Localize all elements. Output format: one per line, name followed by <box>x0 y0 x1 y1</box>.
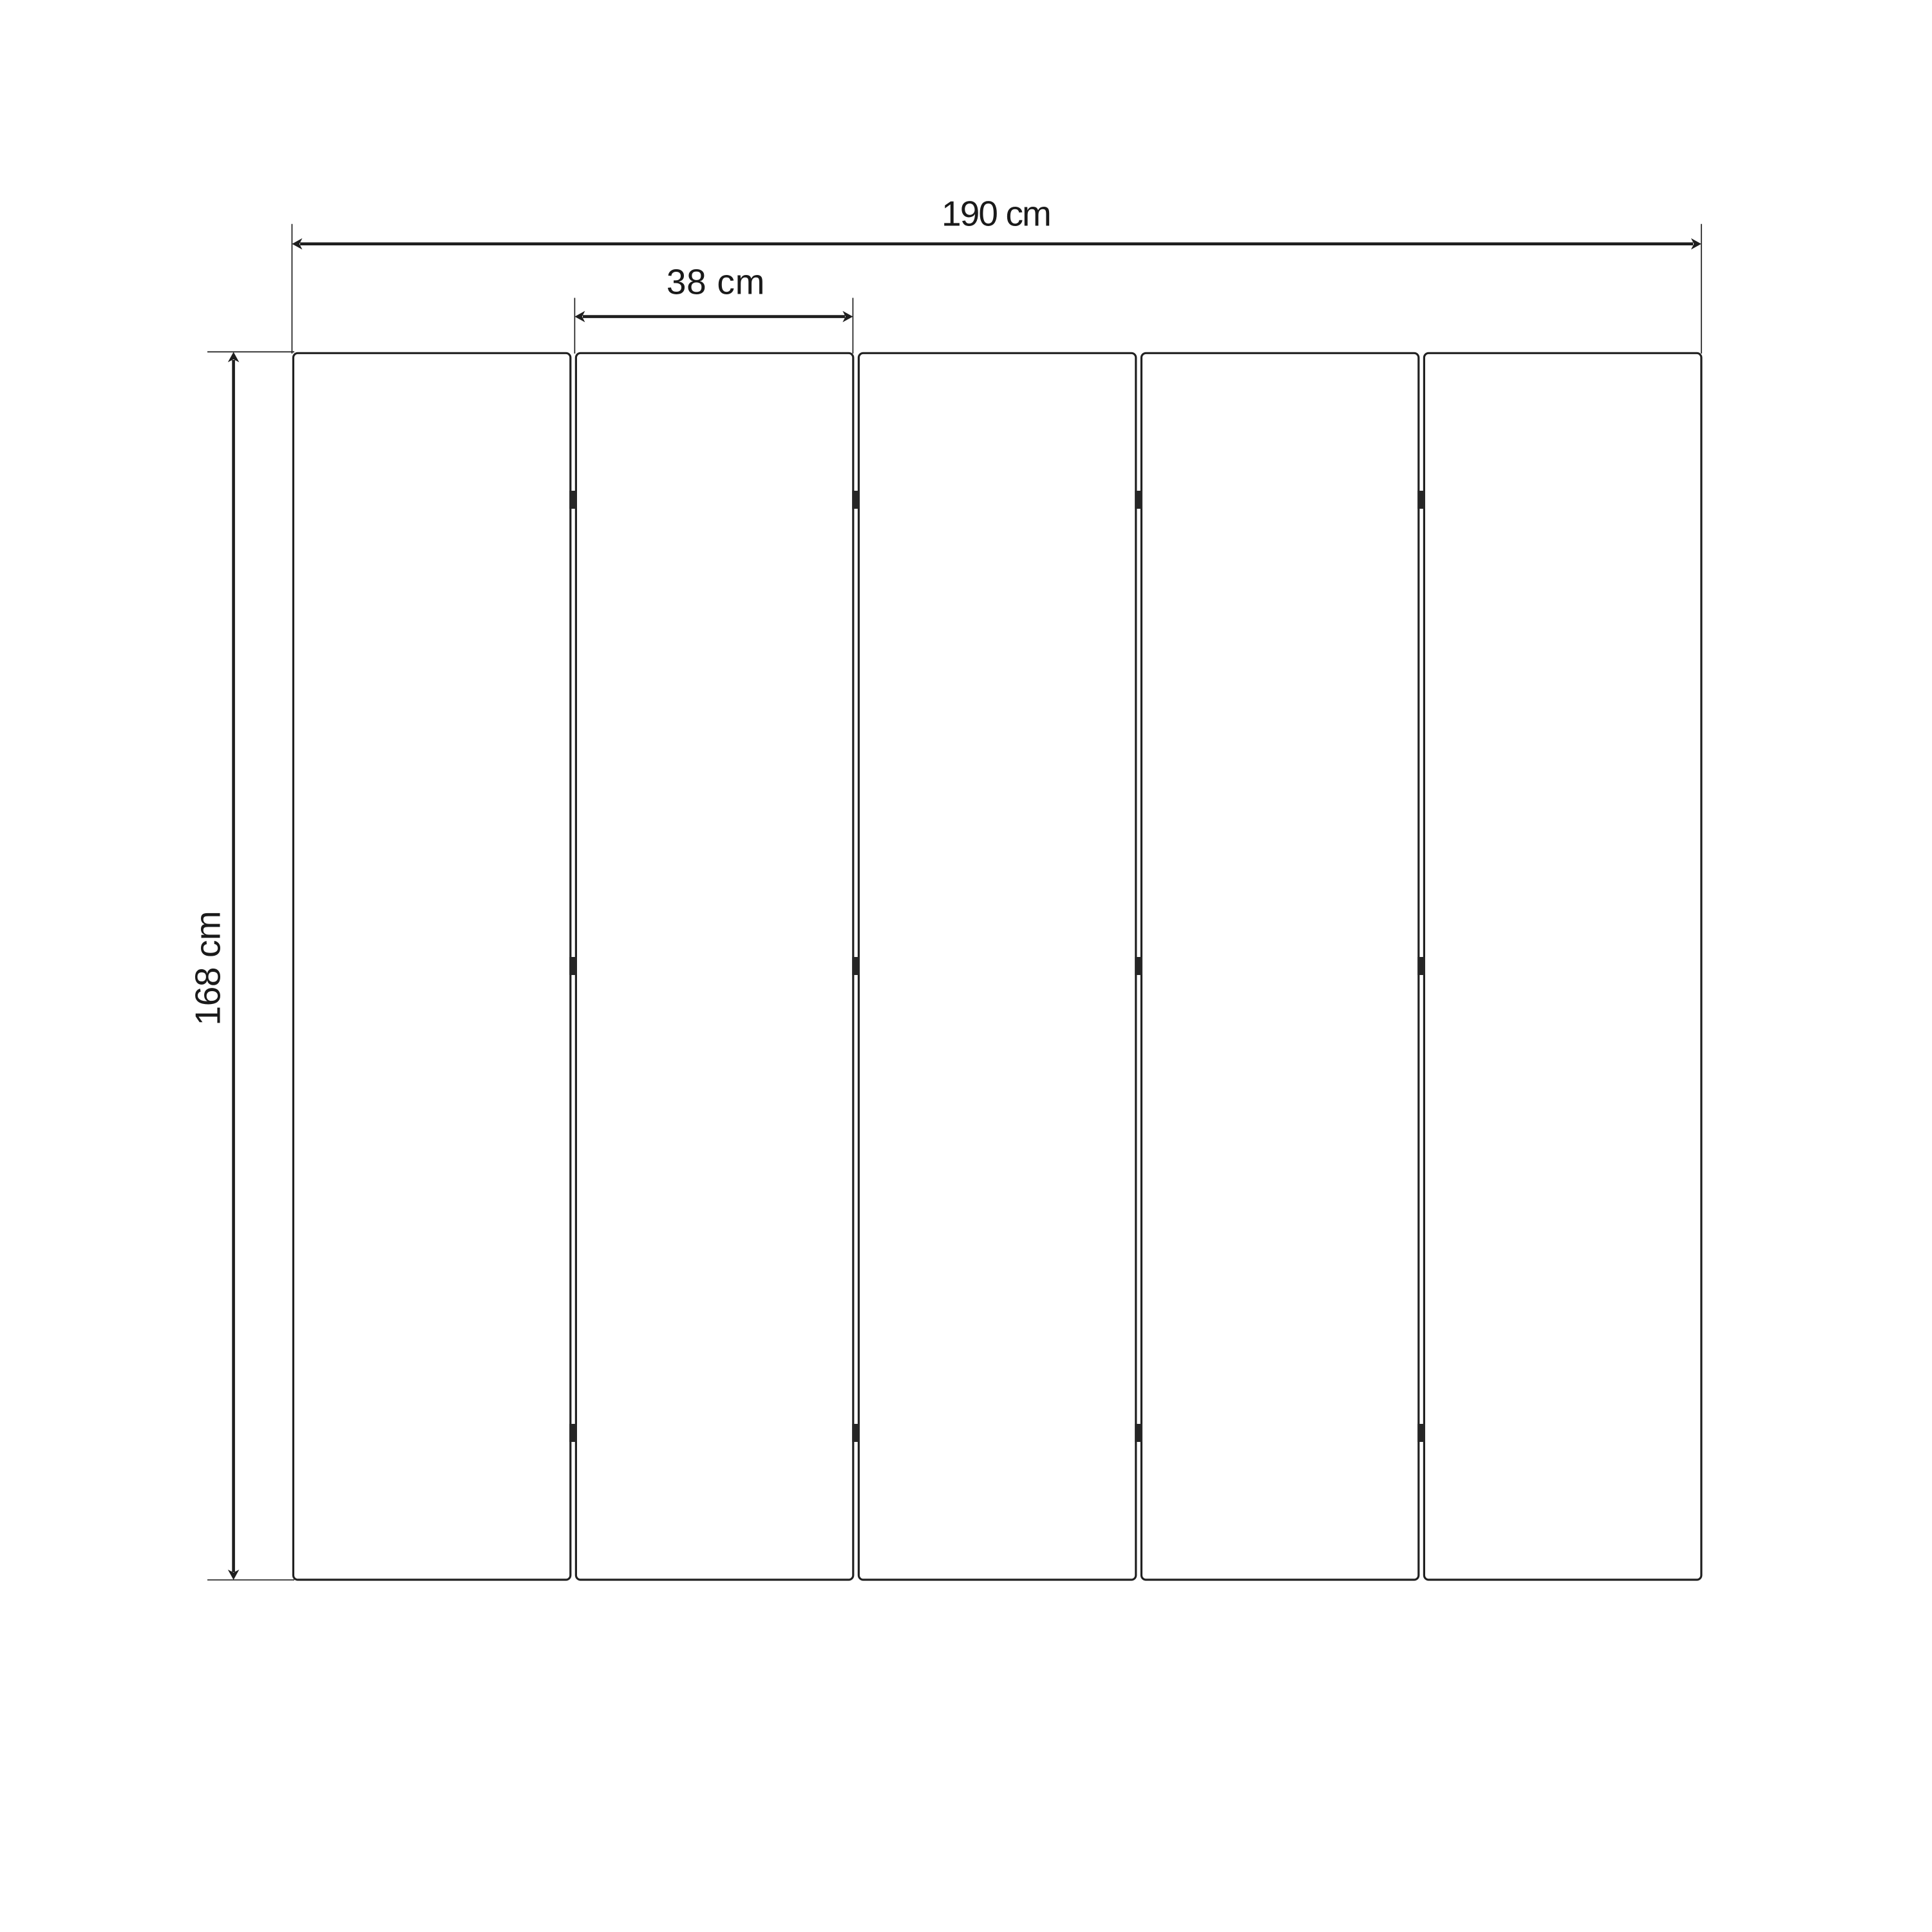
svg-text:38 cm: 38 cm <box>667 262 765 302</box>
svg-text:190 cm: 190 cm <box>942 194 1050 234</box>
svg-text:168 cm: 168 cm <box>188 911 228 1026</box>
